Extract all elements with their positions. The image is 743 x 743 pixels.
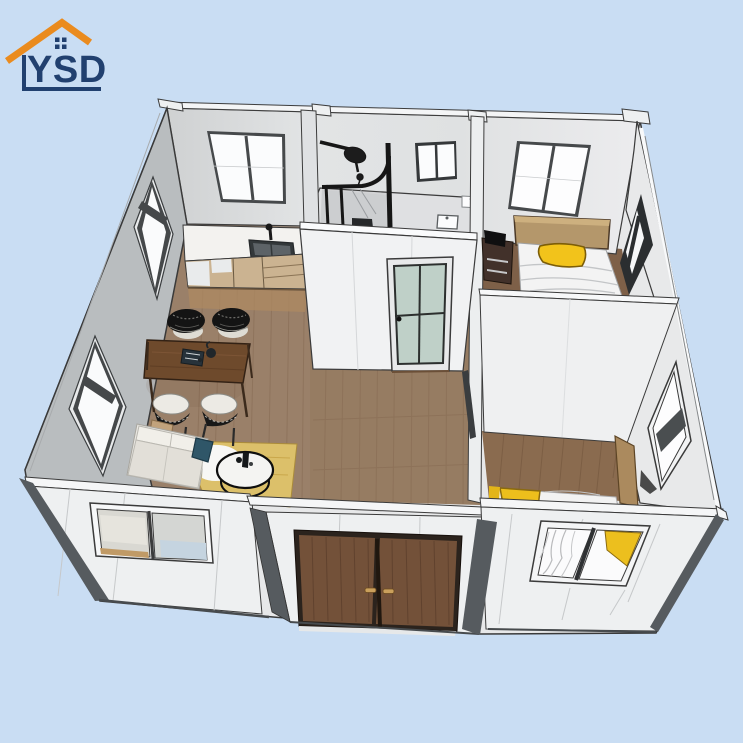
svg-text:YSD: YSD: [27, 49, 107, 91]
